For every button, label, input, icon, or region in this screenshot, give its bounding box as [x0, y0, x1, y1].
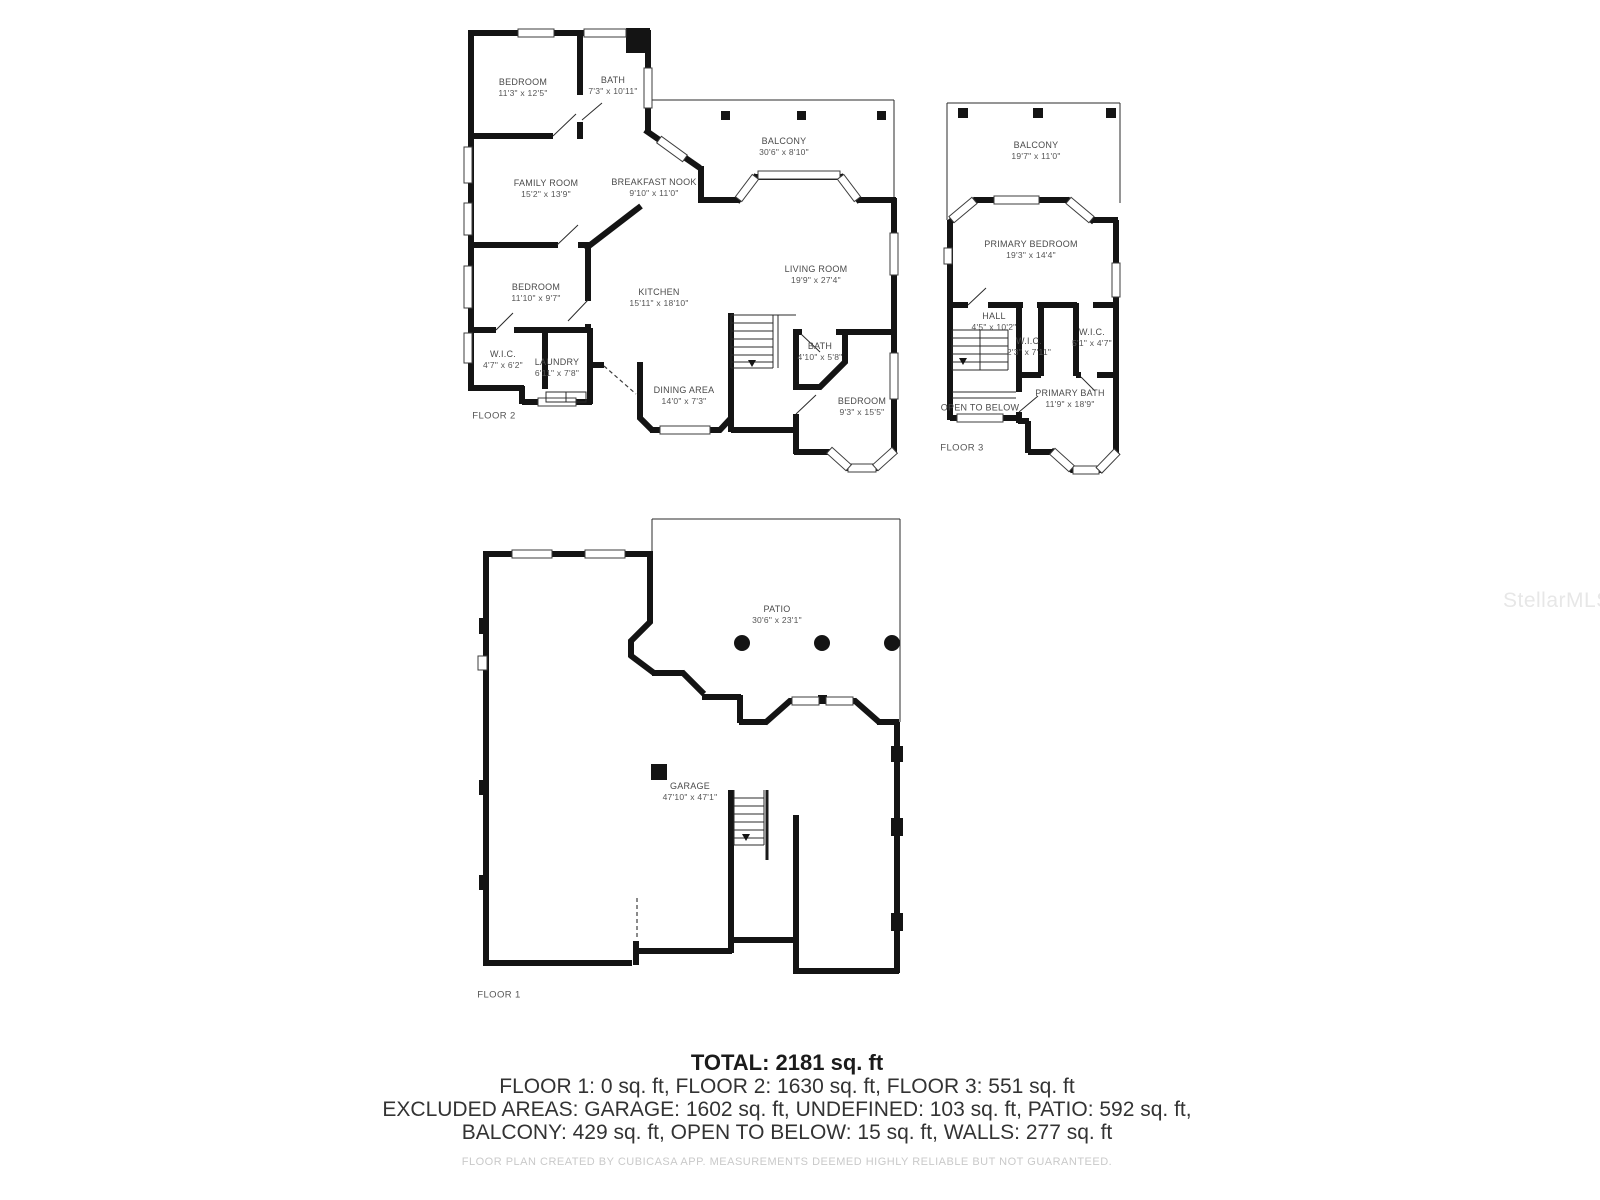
room-label-wic-f2: W.I.C. 4'7" x 6'2" — [483, 349, 523, 371]
total-area-text: TOTAL: 2181 sq. ft — [0, 1050, 1574, 1075]
area-summary: TOTAL: 2181 sq. ft FLOOR 1: 0 sq. ft, FL… — [0, 1050, 1574, 1144]
floor1-solid-blocks — [479, 618, 903, 931]
room-name: OPEN TO BELOW — [941, 402, 1019, 413]
room-name: LIVING ROOM — [785, 264, 848, 275]
room-name: PATIO — [764, 604, 791, 615]
room-label-bath-2: BATH 4'10" x 5'8" — [798, 341, 843, 363]
room-dims: 4'7" x 6'2" — [483, 360, 523, 371]
room-label-primary-bedroom: PRIMARY BEDROOM 19'3" x 14'4" — [984, 239, 1077, 261]
room-name: PRIMARY BATH — [1035, 388, 1105, 399]
room-dims: 19'7" x 11'0" — [1011, 151, 1060, 162]
room-name: W.I.C. — [1016, 336, 1042, 347]
room-label-bedroom-2: BEDROOM 11'10" x 9'7" — [511, 282, 560, 304]
room-label-bath-1: BATH 7'3" x 10'11" — [588, 75, 637, 97]
room-name: BATH — [601, 75, 625, 86]
room-label-wic-2: W.I.C. 5'1" x 4'7" — [1072, 327, 1112, 349]
room-name: W.I.C. — [490, 349, 516, 360]
room-label-living-room: LIVING ROOM 19'9" x 27'4" — [785, 264, 848, 286]
room-label-laundry: LAUNDRY 6'11" x 7'8" — [535, 357, 580, 379]
room-dims: 11'3" x 12'5" — [498, 88, 547, 99]
room-dims: 7'3" x 10'11" — [588, 86, 637, 97]
floor3-label: FLOOR 3 — [940, 443, 983, 454]
floor2-label: FLOOR 2 — [472, 411, 515, 422]
room-dims: 15'11" x 18'10" — [629, 298, 688, 309]
room-name: BEDROOM — [499, 77, 547, 88]
room-label-garage: GARAGE 47'10" x 47'1" — [663, 781, 718, 803]
room-label-kitchen: KITCHEN 15'11" x 18'10" — [629, 287, 688, 309]
room-dims: 9'3" x 15'5" — [840, 407, 885, 418]
room-label-dining-area: DINING AREA 14'0" x 7'3" — [654, 385, 715, 407]
room-dims: 30'6" x 8'10" — [759, 147, 809, 158]
room-name: HALL — [982, 311, 1006, 322]
floor-plan-drawing — [0, 0, 1600, 1200]
excluded-areas-text-1: EXCLUDED AREAS: GARAGE: 1602 sq. ft, UND… — [0, 1098, 1574, 1121]
room-name: BREAKFAST NOOK — [611, 177, 696, 188]
floor1-stairs — [734, 790, 764, 845]
floor-areas-text: FLOOR 1: 0 sq. ft, FLOOR 2: 1630 sq. ft,… — [0, 1075, 1574, 1098]
floor1-walls — [483, 551, 899, 973]
room-name: BALCONY — [1014, 140, 1059, 151]
room-dims: 4'5" x 10'2" — [972, 322, 1017, 333]
room-dims: 30'6" x 23'1" — [752, 615, 802, 626]
room-label-balcony-f3: BALCONY 19'7" x 11'0" — [1011, 140, 1060, 162]
room-dims: 9'10" x 11'0" — [629, 188, 678, 199]
floor1-label: FLOOR 1 — [477, 990, 520, 1001]
room-name: FAMILY ROOM — [514, 178, 578, 189]
floor2-solid-blocks — [626, 28, 886, 120]
floor2-stairs-arrow — [748, 360, 756, 367]
floor2-stairs — [731, 315, 796, 368]
room-dims: 19'3" x 14'4" — [1006, 250, 1056, 261]
room-dims: 15'2" x 13'9" — [521, 189, 571, 200]
room-name: KITCHEN — [638, 287, 679, 298]
room-dims: 19'9" x 27'4" — [791, 275, 841, 286]
room-dims: 4'10" x 5'8" — [798, 352, 843, 363]
floor1-plan — [478, 519, 903, 973]
floor2-entry-door-dashes — [604, 366, 636, 394]
room-name: BATH — [808, 341, 832, 352]
room-name: LAUNDRY — [535, 357, 580, 368]
floor1-windows — [478, 550, 853, 705]
room-label-wic-1: W.I.C. 2'3" x 7'11" — [1007, 336, 1051, 358]
disclaimer-text: FLOOR PLAN CREATED BY CUBICASA APP. MEAS… — [0, 1156, 1574, 1168]
room-label-primary-bath: PRIMARY BATH 11'9" x 18'9" — [1035, 388, 1105, 410]
room-dims: 14'0" x 7'3" — [662, 396, 707, 407]
room-label-patio: PATIO 30'6" x 23'1" — [752, 604, 802, 626]
room-name: DINING AREA — [654, 385, 715, 396]
room-dims: 47'10" x 47'1" — [663, 792, 718, 803]
room-name: W.I.C. — [1079, 327, 1105, 338]
room-label-open-to-below: OPEN TO BELOW — [941, 402, 1019, 413]
room-dims: 2'3" x 7'11" — [1007, 347, 1051, 358]
room-label-family-room: FAMILY ROOM 15'2" x 13'9" — [514, 178, 578, 200]
room-name: GARAGE — [670, 781, 710, 792]
room-dims: 11'10" x 9'7" — [511, 293, 560, 304]
room-dims: 11'9" x 18'9" — [1045, 399, 1094, 410]
room-label-balcony-f2: BALCONY 30'6" x 8'10" — [759, 136, 809, 158]
room-name: BEDROOM — [838, 396, 886, 407]
room-label-hall: HALL 4'5" x 10'2" — [972, 311, 1017, 333]
room-dims: 5'1" x 4'7" — [1072, 338, 1112, 349]
stellar-mls-watermark: StellarMLS — [1503, 589, 1600, 613]
room-label-breakfast-nook: BREAKFAST NOOK 9'10" x 11'0" — [611, 177, 696, 199]
room-name: PRIMARY BEDROOM — [984, 239, 1077, 250]
floor3-solid-blocks — [958, 108, 1116, 118]
room-label-bedroom-3: BEDROOM 9'3" x 15'5" — [838, 396, 886, 418]
excluded-areas-text-2: BALCONY: 429 sq. ft, OPEN TO BELOW: 15 s… — [0, 1121, 1574, 1144]
room-dims: 6'11" x 7'8" — [535, 368, 579, 379]
room-label-bedroom-1: BEDROOM 11'3" x 12'5" — [498, 77, 547, 99]
floor-plan-page: BEDROOM 11'3" x 12'5" BATH 7'3" x 10'11"… — [0, 0, 1600, 1200]
room-name: BALCONY — [762, 136, 807, 147]
room-name: BEDROOM — [512, 282, 560, 293]
